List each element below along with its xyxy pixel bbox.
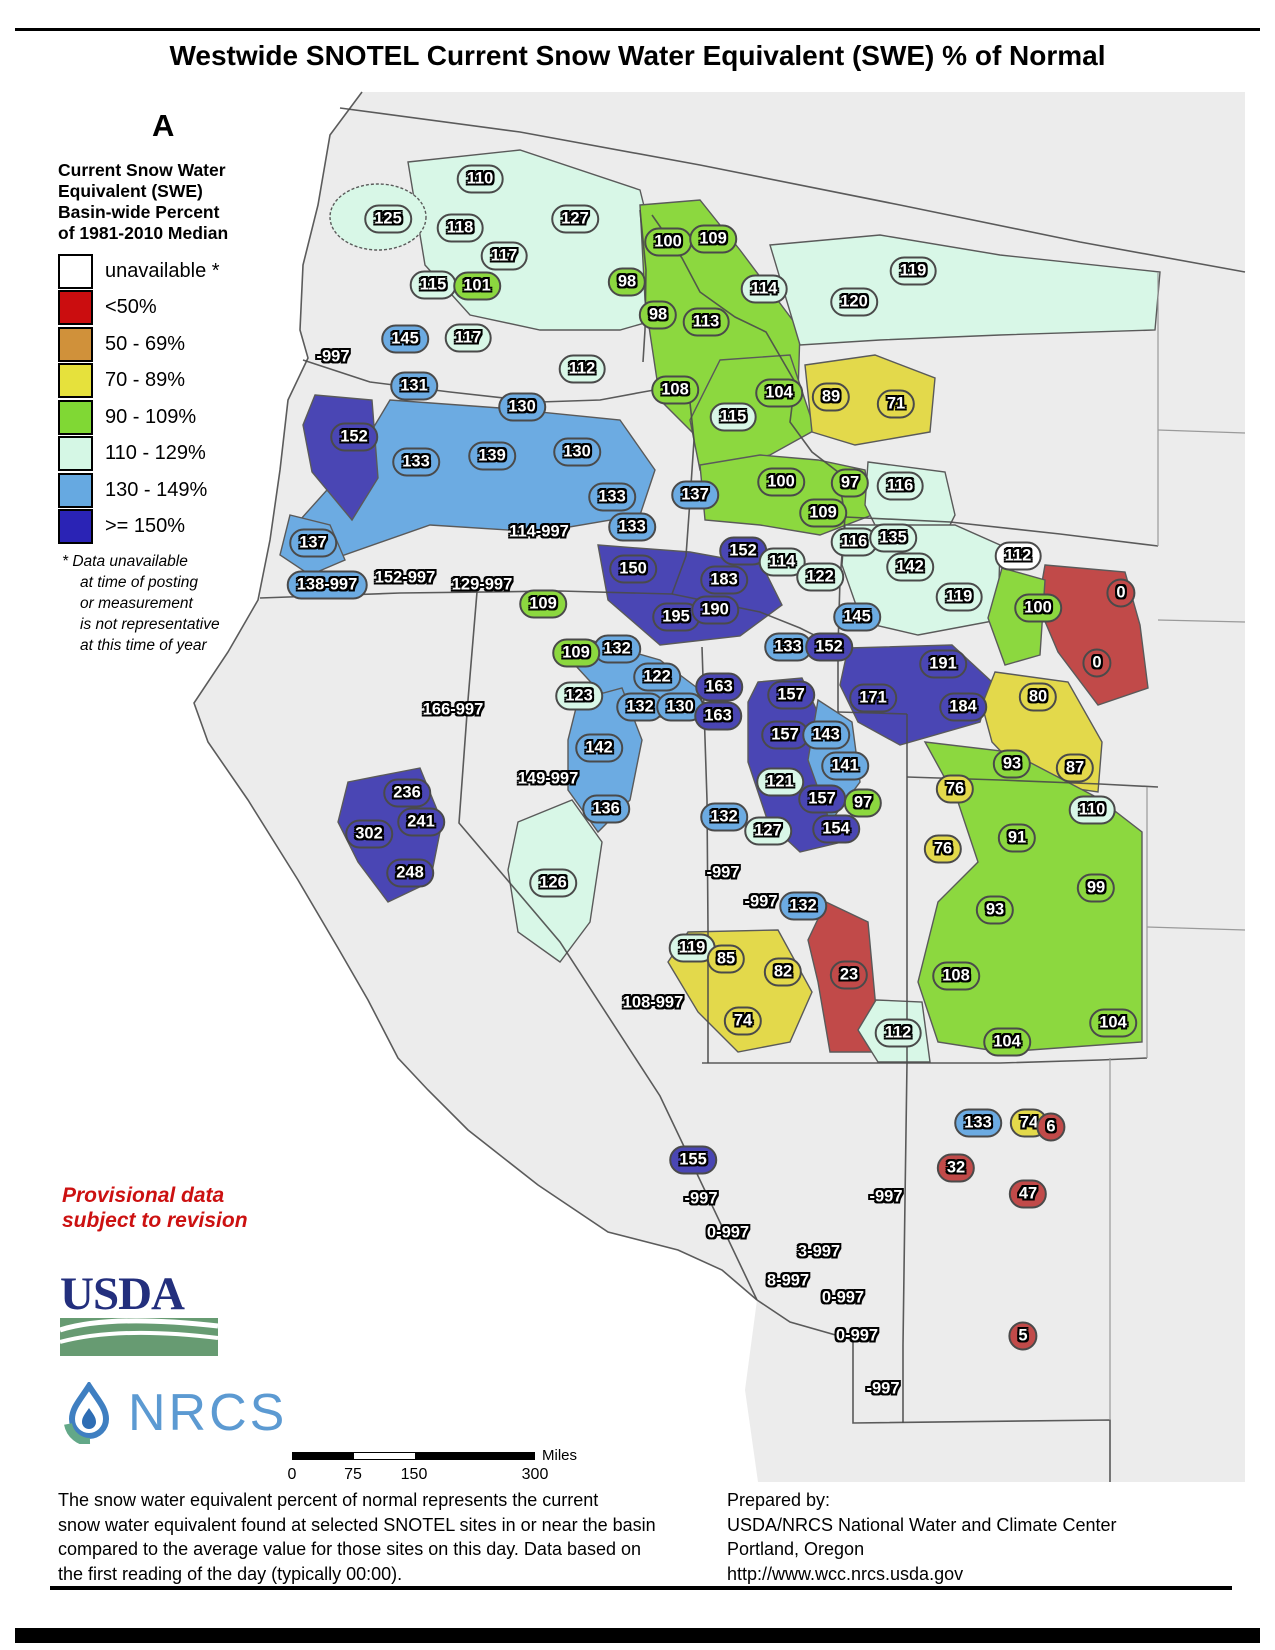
basin-label: 149-997 bbox=[510, 767, 587, 792]
footer-credits: Prepared by:USDA/NRCS National Water and… bbox=[727, 1488, 1116, 1586]
legend-item: 70 - 89% bbox=[58, 365, 318, 397]
basin-label: 142 bbox=[575, 734, 623, 763]
legend-item-label: unavailable * bbox=[105, 260, 220, 283]
footer-credits-line: http://www.wcc.nrcs.usda.gov bbox=[727, 1562, 1116, 1587]
legend-heading-line: Current Snow Water bbox=[58, 160, 318, 181]
basin-label: 99 bbox=[1077, 874, 1115, 903]
basin-label: 163 bbox=[695, 673, 743, 702]
basin-label: 3-997 bbox=[790, 1240, 848, 1265]
basin-label: 114-997 bbox=[501, 520, 577, 545]
footer-description-line: compared to the average value for those … bbox=[58, 1537, 656, 1562]
basin-label: 183 bbox=[700, 566, 748, 595]
legend-swatch bbox=[58, 327, 93, 362]
basin-label: 132 bbox=[700, 803, 748, 832]
scale-bar-tick: 150 bbox=[401, 1466, 428, 1484]
legend: Current Snow WaterEquivalent (SWE)Basin-… bbox=[58, 160, 318, 547]
basin-label: 145 bbox=[833, 603, 881, 632]
basin-label: 120 bbox=[830, 288, 878, 317]
basin-label: 157 bbox=[767, 681, 815, 710]
basin-label: 76 bbox=[936, 775, 974, 804]
basin-label: 126 bbox=[529, 869, 577, 898]
legend-item-label: <50% bbox=[105, 296, 157, 319]
basin-label: 152-997 bbox=[367, 566, 444, 591]
scale-bar-tick: 75 bbox=[344, 1466, 362, 1484]
footer-description-line: snow water equivalent found at selected … bbox=[58, 1513, 656, 1538]
legend-item-label: 90 - 109% bbox=[105, 406, 196, 429]
footer-credits-line: Portland, Oregon bbox=[727, 1537, 1116, 1562]
scale-bar-unit: Miles bbox=[542, 1447, 577, 1464]
basin-label: 108 bbox=[932, 962, 980, 991]
basin-label: 76 bbox=[924, 835, 962, 864]
basin-label: -997 bbox=[858, 1377, 907, 1402]
scale-bar: Miles 075150300 bbox=[292, 1452, 535, 1488]
legend-swatch bbox=[58, 436, 93, 471]
basin-label: 6 bbox=[1036, 1113, 1065, 1142]
basin-label: 248 bbox=[386, 859, 434, 888]
basin-label: 87 bbox=[1056, 754, 1094, 783]
legend-item: <50% bbox=[58, 292, 318, 324]
legend-heading: Current Snow WaterEquivalent (SWE)Basin-… bbox=[58, 160, 318, 244]
legend-footnote-line: or measurement bbox=[62, 593, 220, 614]
basin-label: 163 bbox=[694, 702, 742, 731]
basin-label: 133 bbox=[588, 483, 636, 512]
basin-label: 98 bbox=[639, 301, 677, 330]
basin-label: 85 bbox=[707, 945, 745, 974]
basin-label: 82 bbox=[764, 958, 802, 987]
basin-label: 141 bbox=[821, 752, 869, 781]
legend-item: 110 - 129% bbox=[58, 438, 318, 470]
legend-swatch bbox=[58, 509, 93, 544]
footer-description-line: the first reading of the day (typically … bbox=[58, 1562, 656, 1587]
basin-label: 136 bbox=[582, 795, 630, 824]
scale-bar-segments bbox=[292, 1452, 535, 1460]
basin-label: 116 bbox=[877, 472, 924, 501]
basin-label: 5 bbox=[1008, 1322, 1037, 1351]
basin-label: 0 bbox=[1106, 579, 1135, 608]
basin-label: 121 bbox=[756, 768, 804, 797]
basin-label: 109 bbox=[799, 499, 847, 528]
legend-swatch bbox=[58, 473, 93, 508]
basin-label: 125 bbox=[364, 205, 412, 234]
basin-label: 112 bbox=[875, 1019, 922, 1048]
basin-label: 89 bbox=[812, 383, 850, 412]
basin-label: 138-997 bbox=[287, 571, 368, 600]
basin-label: 131 bbox=[390, 372, 438, 401]
basin-label: 123 bbox=[555, 682, 603, 711]
basin-label: 104 bbox=[1089, 1009, 1137, 1038]
basin-label: 236 bbox=[383, 779, 431, 808]
basin-label: 32 bbox=[937, 1154, 975, 1183]
basin-label: 143 bbox=[802, 721, 850, 750]
legend-heading-line: Equivalent (SWE) bbox=[58, 181, 318, 202]
basin-label: 23 bbox=[830, 961, 868, 990]
legend-item: 130 - 149% bbox=[58, 474, 318, 506]
basin-label: 127 bbox=[744, 817, 792, 846]
basin-label: 191 bbox=[919, 650, 967, 679]
legend-item: unavailable * bbox=[58, 255, 318, 287]
legend-swatch bbox=[58, 254, 93, 289]
basin-label: 171 bbox=[849, 684, 897, 713]
basin-label: 132 bbox=[593, 635, 641, 664]
basin-label: 130 bbox=[553, 438, 601, 467]
basin-label: 71 bbox=[877, 390, 915, 419]
nrcs-wordmark: NRCS bbox=[128, 1385, 287, 1441]
basin-label: 80 bbox=[1019, 683, 1057, 712]
nrcs-logo: NRCS bbox=[58, 1382, 287, 1444]
basin-label: 152 bbox=[805, 633, 853, 662]
basin-label: 145 bbox=[381, 325, 429, 354]
legend-swatch bbox=[58, 290, 93, 325]
legend-item: 50 - 69% bbox=[58, 328, 318, 360]
basin-label: 122 bbox=[633, 663, 681, 692]
footer-description-line: The snow water equivalent percent of nor… bbox=[58, 1488, 656, 1513]
basin-label: 0-997 bbox=[699, 1221, 757, 1246]
legend-item: 90 - 109% bbox=[58, 401, 318, 433]
basin-label: 119 bbox=[890, 257, 937, 286]
legend-footnote-line: at this time of year bbox=[62, 635, 220, 656]
basin-label: 0-997 bbox=[814, 1286, 872, 1311]
legend-swatch bbox=[58, 400, 93, 435]
nrcs-droplet-icon bbox=[58, 1382, 120, 1444]
footer-description: The snow water equivalent percent of nor… bbox=[58, 1488, 656, 1586]
scale-bar-tick: 0 bbox=[288, 1466, 297, 1484]
basin-label: 109 bbox=[519, 590, 567, 619]
legend-footnote-line: * Data unavailable bbox=[62, 551, 220, 572]
basin-label: 184 bbox=[939, 693, 987, 722]
basin-label: 133 bbox=[954, 1109, 1002, 1138]
footer-credits-line: USDA/NRCS National Water and Climate Cen… bbox=[727, 1513, 1116, 1538]
legend-item-label: 130 - 149% bbox=[105, 479, 207, 502]
basin-label: 0 bbox=[1082, 649, 1111, 678]
basin-label: 113 bbox=[683, 308, 730, 337]
basin-label: 119 bbox=[936, 583, 983, 612]
basin-label: 112 bbox=[559, 355, 606, 384]
usda-wordmark: USDA bbox=[60, 1272, 220, 1316]
basin-label: -997 bbox=[676, 1187, 725, 1212]
basin-label: 47 bbox=[1009, 1180, 1047, 1209]
legend-items: unavailable *<50%50 - 69%70 - 89%90 - 10… bbox=[58, 255, 318, 543]
basin-label: -997 bbox=[698, 861, 747, 886]
provisional-line: subject to revision bbox=[62, 1208, 248, 1233]
basin-label: 142 bbox=[886, 553, 934, 582]
basin-label: 130 bbox=[498, 393, 546, 422]
bottom-bar bbox=[15, 1628, 1260, 1643]
legend-heading-line: Basin-wide Percent bbox=[58, 202, 318, 223]
basin-label: 115 bbox=[410, 271, 457, 300]
basin-label: 109 bbox=[689, 225, 737, 254]
basin-label: 152 bbox=[330, 423, 378, 452]
legend-item: >= 150% bbox=[58, 511, 318, 543]
legend-swatch bbox=[58, 363, 93, 398]
basin-label: 135 bbox=[869, 524, 917, 553]
basin-label: 98 bbox=[608, 268, 646, 297]
basin-label: 115 bbox=[710, 403, 757, 432]
basin-label: 108 bbox=[651, 376, 699, 405]
basin-label: 112 bbox=[995, 542, 1042, 571]
basin-label: 150 bbox=[609, 555, 657, 584]
legend-footnote: * Data unavailableat time of postingor m… bbox=[62, 551, 220, 656]
basin-label: 190 bbox=[691, 596, 739, 625]
basin-label: 117 bbox=[481, 242, 528, 271]
provisional-line: Provisional data bbox=[62, 1183, 248, 1208]
basin-label: 93 bbox=[976, 896, 1014, 925]
basin-label: 114 bbox=[741, 275, 788, 304]
legend-item-label: 50 - 69% bbox=[105, 333, 185, 356]
basin-label: 100 bbox=[1014, 594, 1062, 623]
basin-label: 0-997 bbox=[828, 1324, 886, 1349]
basin-label: -997 bbox=[736, 890, 785, 915]
basin-label: 122 bbox=[796, 563, 844, 592]
bottom-rule bbox=[50, 1586, 1232, 1590]
basin-label: 132 bbox=[779, 892, 827, 921]
basin-label: -997 bbox=[861, 1185, 910, 1210]
basin-label: 100 bbox=[757, 468, 805, 497]
page: Westwide SNOTEL Current Snow Water Equiv… bbox=[0, 0, 1275, 1650]
legend-item-label: >= 150% bbox=[105, 515, 185, 538]
basin-label: 104 bbox=[983, 1028, 1031, 1057]
basin-label: 129-997 bbox=[444, 573, 521, 598]
basin-label: 100 bbox=[644, 228, 692, 257]
basin-label: 97 bbox=[844, 789, 882, 818]
basin-label: 137 bbox=[671, 481, 719, 510]
basin-label: 104 bbox=[755, 379, 803, 408]
basin-label: 93 bbox=[993, 750, 1031, 779]
basin-label: 133 bbox=[392, 448, 440, 477]
basin-label: 74 bbox=[724, 1007, 762, 1036]
basin-label: 110 bbox=[457, 165, 504, 194]
basin-label: 108-997 bbox=[615, 991, 692, 1016]
basin-label: 302 bbox=[345, 820, 393, 849]
basin-label: 109 bbox=[552, 639, 600, 668]
basin-label: 110 bbox=[1069, 796, 1116, 825]
basin-label: 97 bbox=[831, 469, 869, 498]
legend-item-label: 70 - 89% bbox=[105, 369, 185, 392]
legend-footnote-line: at time of posting bbox=[62, 572, 220, 593]
usda-swoosh-icon bbox=[60, 1316, 220, 1358]
basin-label: 101 bbox=[453, 272, 501, 301]
basin-label: 241 bbox=[397, 808, 445, 837]
provisional-note: Provisional datasubject to revision bbox=[62, 1183, 248, 1233]
usda-logo: USDA bbox=[60, 1272, 220, 1363]
legend-heading-line: of 1981-2010 Median bbox=[58, 223, 318, 244]
legend-item-label: 110 - 129% bbox=[105, 442, 206, 465]
scale-bar-tick: 300 bbox=[522, 1466, 549, 1484]
basin-label: 157 bbox=[798, 785, 846, 814]
basin-label: 166-997 bbox=[415, 698, 492, 723]
basin-label: 155 bbox=[669, 1146, 717, 1175]
basin-label: 117 bbox=[445, 324, 492, 353]
basin-label: 127 bbox=[551, 205, 599, 234]
footer-credits-line: Prepared by: bbox=[727, 1488, 1116, 1513]
basin-label: 133 bbox=[608, 513, 656, 542]
basin-label: 118 bbox=[437, 214, 484, 243]
legend-footnote-line: is not representative bbox=[62, 614, 220, 635]
basin-label: 139 bbox=[468, 442, 516, 471]
basin-label: 8-997 bbox=[759, 1269, 817, 1294]
basin-label: 91 bbox=[998, 824, 1036, 853]
basin-label: 154 bbox=[812, 815, 860, 844]
